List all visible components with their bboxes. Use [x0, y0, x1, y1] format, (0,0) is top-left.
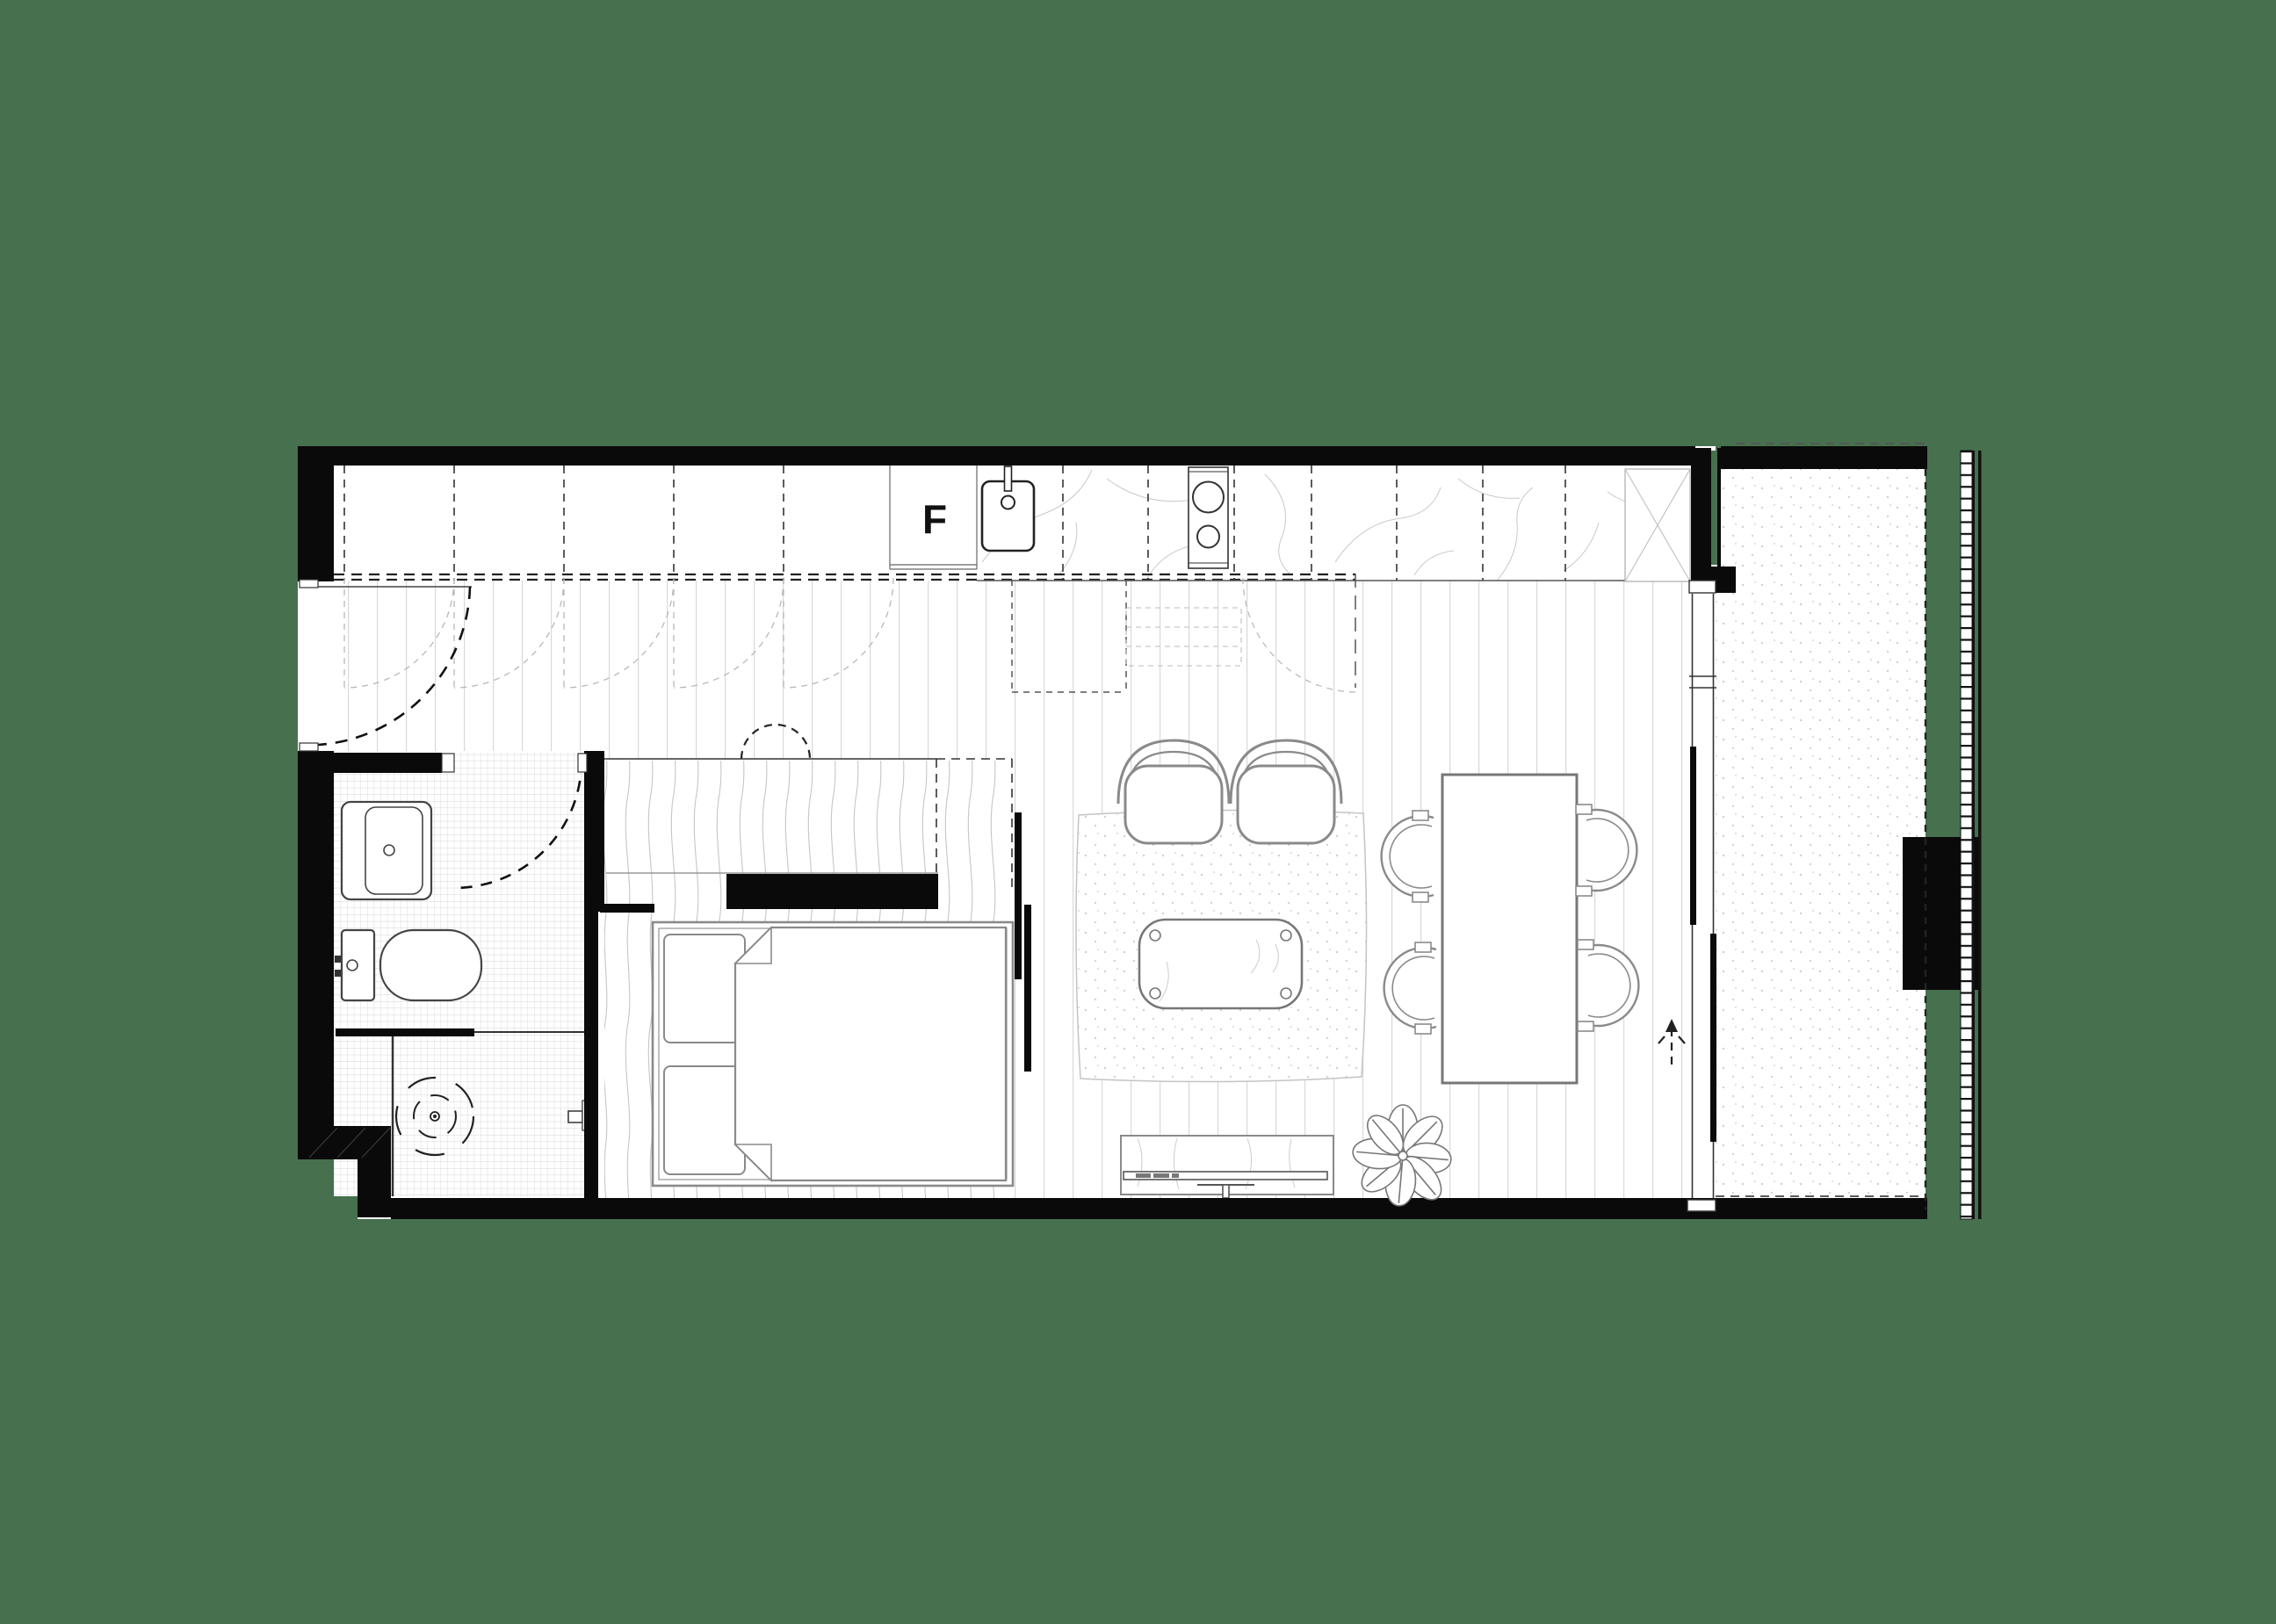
coffee-table	[1139, 920, 1302, 1008]
wall-bathroom-top	[299, 753, 442, 773]
floor-plan-page: F	[0, 0, 2276, 1624]
burner-large	[1193, 482, 1224, 513]
toilet	[335, 930, 481, 1000]
tv-stand	[1223, 1185, 1229, 1198]
wall-top	[298, 446, 1695, 466]
pillow	[664, 935, 745, 1043]
wall-bathroom-right-lower	[584, 912, 598, 1198]
duvet	[735, 927, 1006, 1180]
tv-unit	[1121, 1136, 1333, 1198]
sliding-glass-panel	[1690, 747, 1696, 925]
pillow	[664, 1066, 745, 1174]
dining-table	[1442, 775, 1577, 1083]
wall-left-upper	[298, 446, 334, 581]
wall-left-stub	[358, 1159, 391, 1217]
cooktop	[1189, 467, 1228, 568]
bathroom-door-threshold	[454, 753, 582, 773]
bed	[653, 922, 1013, 1186]
wall-shower-nib	[336, 1029, 474, 1036]
window-jamb	[1687, 1200, 1716, 1211]
door-jamb	[300, 580, 318, 588]
floor-plan: F	[0, 0, 2276, 1624]
window-jamb	[1689, 581, 1716, 593]
vanity	[342, 802, 431, 899]
door-jamb	[578, 754, 587, 772]
tall-cabinet	[1625, 469, 1690, 581]
privacy-screen	[1961, 451, 1982, 1219]
door-jamb	[442, 754, 454, 772]
balcony-paving	[1716, 469, 1926, 1198]
fridge-label: F	[922, 496, 947, 542]
burner-small	[1197, 526, 1219, 548]
sliding-glass-panel	[1710, 934, 1716, 1142]
hall-floorboards	[604, 581, 1013, 759]
wall-bathroom-right-upper	[584, 751, 604, 912]
door-jamb	[300, 743, 318, 751]
corner-column-fin	[1717, 448, 1721, 571]
toilet-bowl	[380, 930, 481, 1000]
tap-icon	[1005, 466, 1012, 491]
sliding-panel	[1015, 812, 1022, 979]
bedhead-joinery	[726, 874, 938, 909]
wall-balcony-top	[1736, 446, 1927, 469]
wall-bedroom-nib	[600, 904, 654, 913]
sliding-panel	[1024, 905, 1031, 1072]
wall-left-lower	[298, 751, 334, 1126]
